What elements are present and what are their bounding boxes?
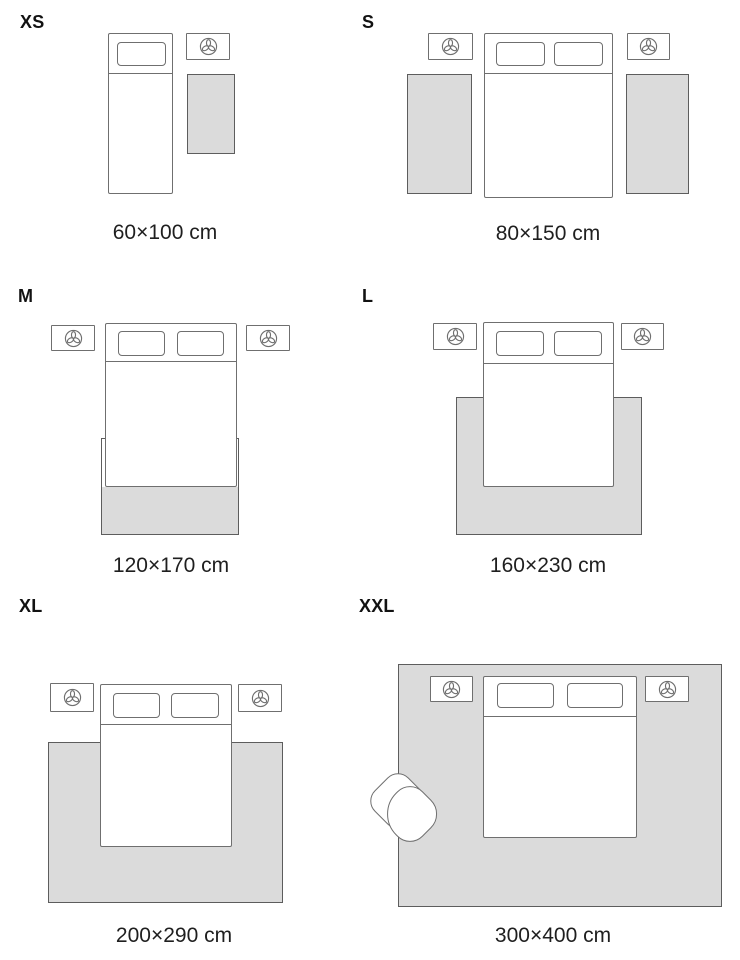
plant-icon [638,36,659,57]
rug-exposed-area [102,487,238,534]
nightstand [621,323,664,350]
nightstand [186,33,230,60]
bed [105,323,237,487]
dimension-caption-xl: 200×290 cm [64,924,284,948]
pillow [117,42,166,66]
nightstand [645,676,689,702]
plant-icon [657,679,678,700]
plant-icon [198,36,219,57]
bed [484,33,613,198]
plant-icon [63,328,84,349]
plant-icon [632,326,653,347]
pillow [118,331,165,356]
pillow [567,683,623,708]
nightstand [51,325,95,351]
bed [100,684,232,847]
nightstand [246,325,290,351]
dimension-caption-l: 160×230 cm [438,554,658,578]
dimension-caption-s: 80×150 cm [438,222,658,246]
nightstand [433,323,477,350]
pillow [496,42,545,66]
dimension-caption-xxl: 300×400 cm [443,924,663,948]
bed [483,322,614,487]
plant-icon [250,688,271,709]
plant-icon [258,328,279,349]
plant-icon [445,326,466,347]
size-label-xl: XL [19,597,42,615]
plant-icon [440,36,461,57]
nightstand [428,33,473,60]
nightstand [430,676,473,702]
rug [187,74,235,154]
size-label-m: M [18,287,33,305]
size-label-xxl: XXL [359,597,395,615]
size-label-l: L [362,287,373,305]
pillow [554,42,603,66]
pillow [171,693,219,718]
pillow [177,331,224,356]
bed [483,676,637,838]
nightstand [50,683,94,712]
bed [108,33,173,194]
plant-icon [441,679,462,700]
size-label-s: S [362,13,374,31]
pillow [496,331,544,356]
plant-icon [62,687,83,708]
dimension-caption-xs: 60×100 cm [55,221,275,245]
nightstand [627,33,670,60]
rug [626,74,689,194]
rug [407,74,472,194]
rug-size-guide: XS 60×100 cm S [0,0,740,960]
dimension-caption-m: 120×170 cm [61,554,281,578]
pillow [113,693,160,718]
size-label-xs: XS [20,13,44,31]
pillow [497,683,554,708]
nightstand [238,684,282,712]
pillow [554,331,602,356]
